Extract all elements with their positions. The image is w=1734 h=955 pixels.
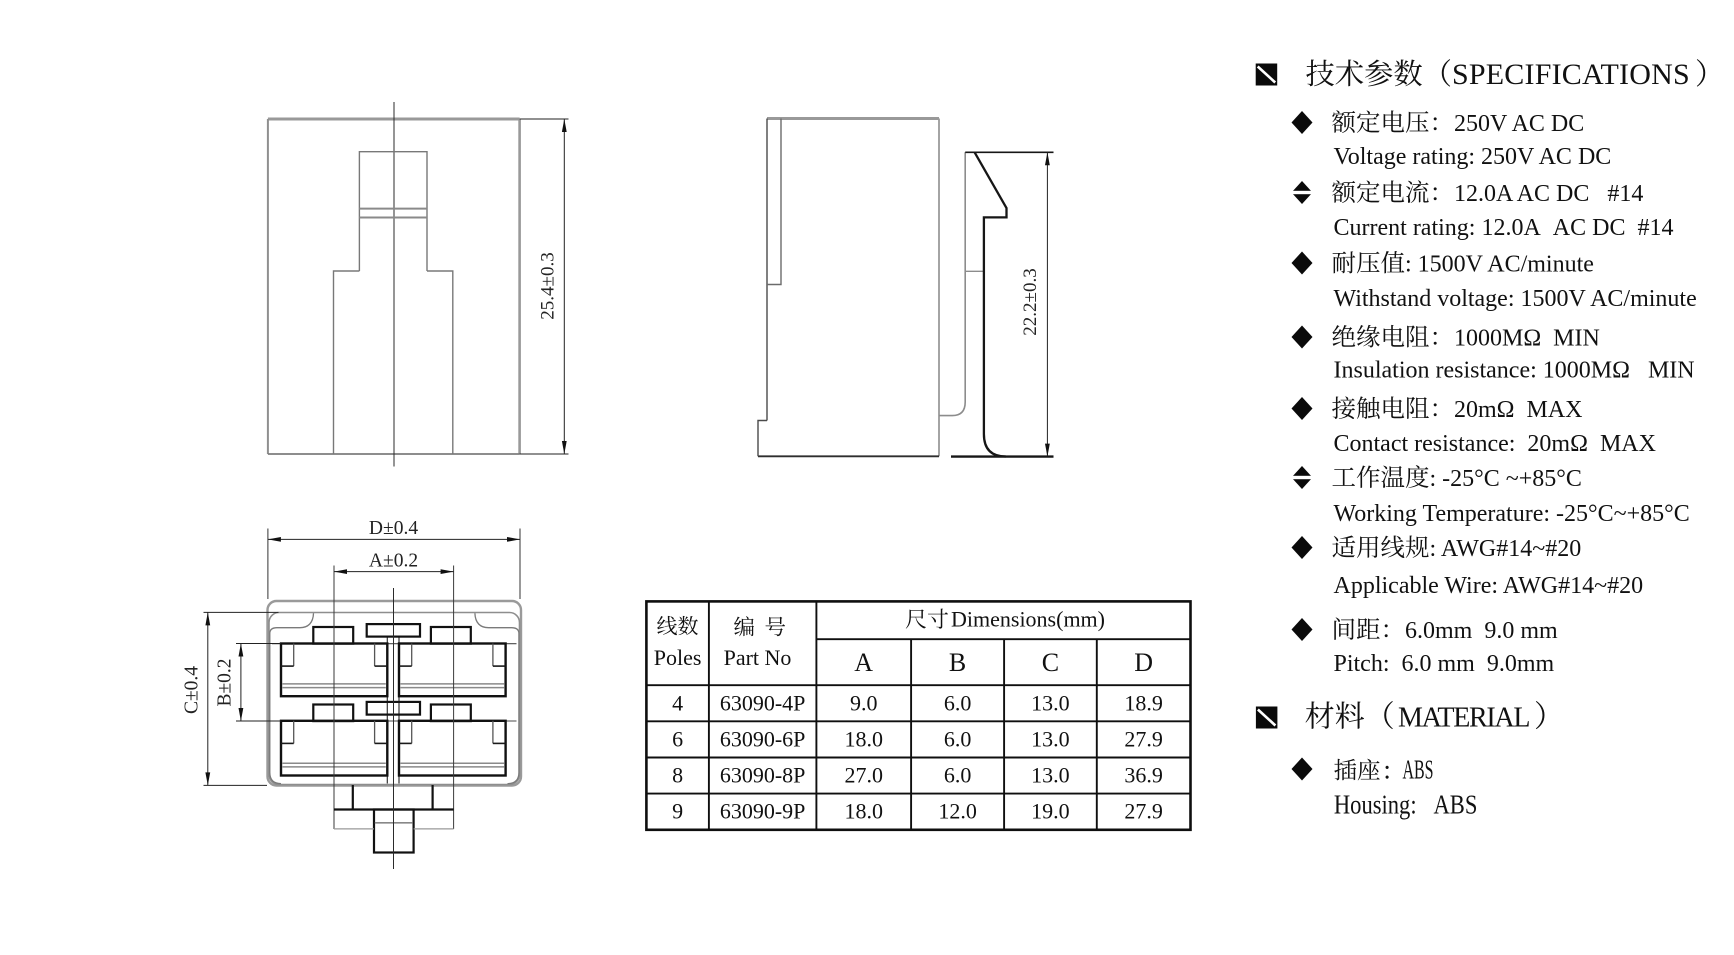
svg-text:27.0: 27.0 [844,763,883,788]
svg-text:: 1500V AC/minute: : 1500V AC/minute [1405,252,1594,278]
svg-text:20mΩ MAX: 20mΩ MAX [1454,397,1583,423]
svg-text:Housing: ABS: Housing: ABS [1334,790,1478,820]
svg-text:: AWG#14~#20: : AWG#14~#20 [1430,536,1582,562]
svg-text:Current rating: 12.0A AC DC: Current rating: 12.0A AC DC #14 [1334,215,1674,241]
svg-text:63090-8P: 63090-8P [720,763,806,788]
svg-text:9.0: 9.0 [850,690,878,715]
svg-text:B±0.2: B±0.2 [215,658,236,706]
svg-text:C±0.4: C±0.4 [182,666,203,714]
svg-text:B: B [949,648,966,677]
svg-text:36.9: 36.9 [1124,763,1163,788]
svg-text:22.2±0.3: 22.2±0.3 [1020,268,1041,335]
svg-text:13.0: 13.0 [1031,726,1070,751]
svg-text:Working Temperature: -25°C~+85: Working Temperature: -25°C~+85°C [1334,501,1690,527]
svg-text:4: 4 [672,690,683,715]
svg-text:250V AC DC: 250V AC DC [1454,111,1584,137]
svg-text:Dimensions(mm): Dimensions(mm) [951,607,1105,632]
svg-text:SPECIFICATIONS: SPECIFICATIONS [1452,58,1690,91]
svg-text:Part No: Part No [724,645,792,670]
svg-text:8: 8 [672,763,683,788]
svg-text:6.0: 6.0 [944,726,972,751]
svg-text:Insulation resistance: 1000MΩ: Insulation resistance: 1000MΩ MIN [1334,358,1695,384]
svg-text:63090-4P: 63090-4P [720,690,806,715]
svg-text:63090-9P: 63090-9P [720,799,806,824]
svg-text:6.0: 6.0 [944,763,972,788]
svg-text:MATERIAL: MATERIAL [1398,703,1529,734]
svg-text:12.0: 12.0 [938,799,977,824]
svg-text:13.0: 13.0 [1031,763,1070,788]
svg-text:: -25°C ~+85°C: : -25°C ~+85°C [1430,466,1582,492]
svg-text:Voltage rating: 250V AC DC: Voltage rating: 250V AC DC [1334,144,1612,170]
svg-text:63090-6P: 63090-6P [720,726,806,751]
svg-text:12.0A AC DC #14: 12.0A AC DC #14 [1454,181,1643,207]
svg-text:6.0mm 9.0 mm: 6.0mm 9.0 mm [1405,618,1558,644]
svg-text:Contact resistance: 20mΩ MAX: Contact resistance: 20mΩ MAX [1334,431,1656,457]
svg-text:A: A [854,648,873,677]
svg-text:18.0: 18.0 [844,726,883,751]
svg-text:27.9: 27.9 [1124,726,1163,751]
svg-text:D: D [1134,648,1153,677]
svg-text:25.4±0.3: 25.4±0.3 [538,252,559,319]
svg-text:Applicable Wire: AWG#14~#20: Applicable Wire: AWG#14~#20 [1334,573,1644,599]
svg-text:ABS: ABS [1403,755,1434,785]
svg-text:13.0: 13.0 [1031,690,1070,715]
svg-text::: : [1383,755,1391,785]
svg-text:6.0: 6.0 [944,690,972,715]
svg-text:Withstand voltage: 1500V AC/mi: Withstand voltage: 1500V AC/minute [1334,286,1697,312]
svg-text:27.9: 27.9 [1124,799,1163,824]
svg-text:A±0.2: A±0.2 [369,551,418,572]
svg-text:Poles: Poles [654,645,702,670]
svg-text:C: C [1042,648,1059,677]
svg-text:Pitch: 6.0 mm 9.0mm: Pitch: 6.0 mm 9.0mm [1334,651,1555,677]
svg-text:9: 9 [672,799,683,824]
svg-text:1000MΩ MIN: 1000MΩ MIN [1454,326,1600,352]
svg-text:18.9: 18.9 [1124,690,1163,715]
svg-text:19.0: 19.0 [1031,799,1070,824]
svg-text:6: 6 [672,726,683,751]
svg-text:18.0: 18.0 [844,799,883,824]
svg-text:D±0.4: D±0.4 [369,518,418,539]
